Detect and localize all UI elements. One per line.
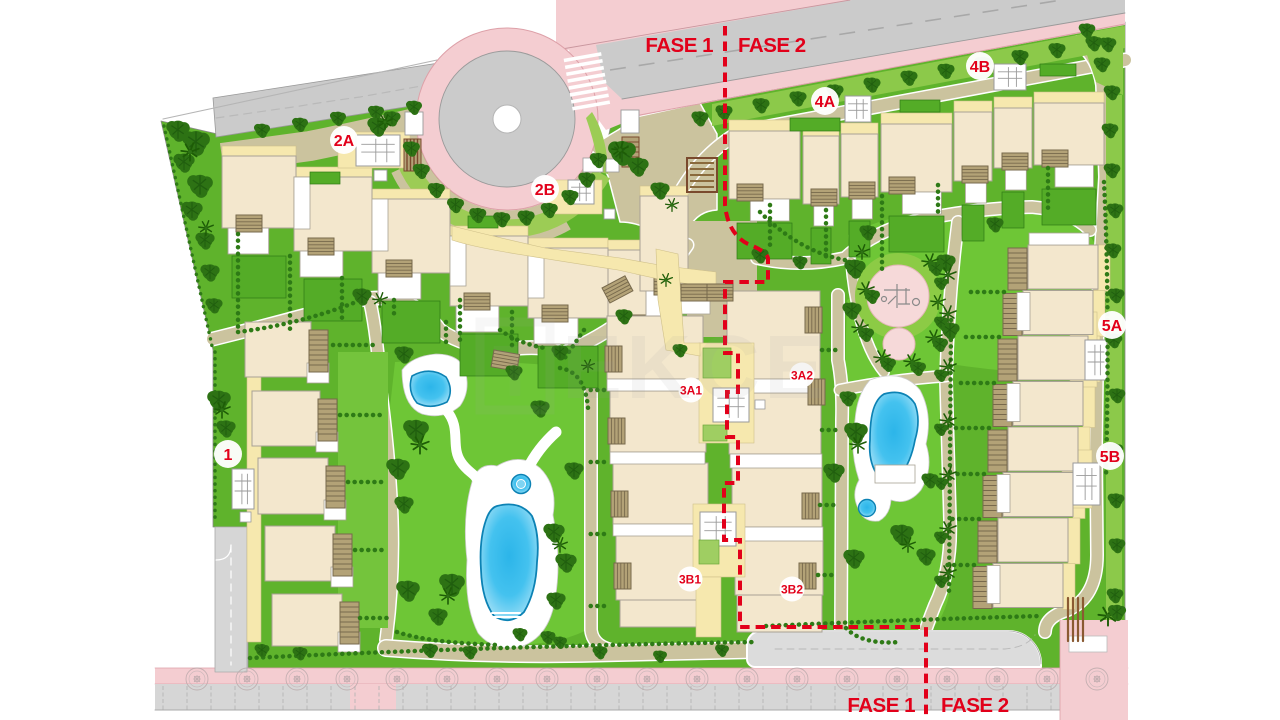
svg-text:3B1: 3B1 [679,572,701,586]
svg-text:FASE 1: FASE 1 [847,694,915,717]
svg-text:5B: 5B [1100,449,1120,466]
svg-text:3B2: 3B2 [781,582,803,596]
svg-text:4B: 4B [970,59,990,76]
svg-text:2A: 2A [334,133,355,150]
svg-text:FASE 2: FASE 2 [738,34,806,57]
svg-text:5A: 5A [1102,318,1123,335]
svg-text:1: 1 [224,447,233,464]
svg-text:EKCE: EKCE [562,318,828,418]
svg-text:T: T [493,332,537,412]
svg-text:2B: 2B [535,182,555,199]
svg-text:FASE 1: FASE 1 [645,34,713,57]
svg-text:FASE 2: FASE 2 [941,694,1009,717]
svg-text:4A: 4A [815,94,836,111]
